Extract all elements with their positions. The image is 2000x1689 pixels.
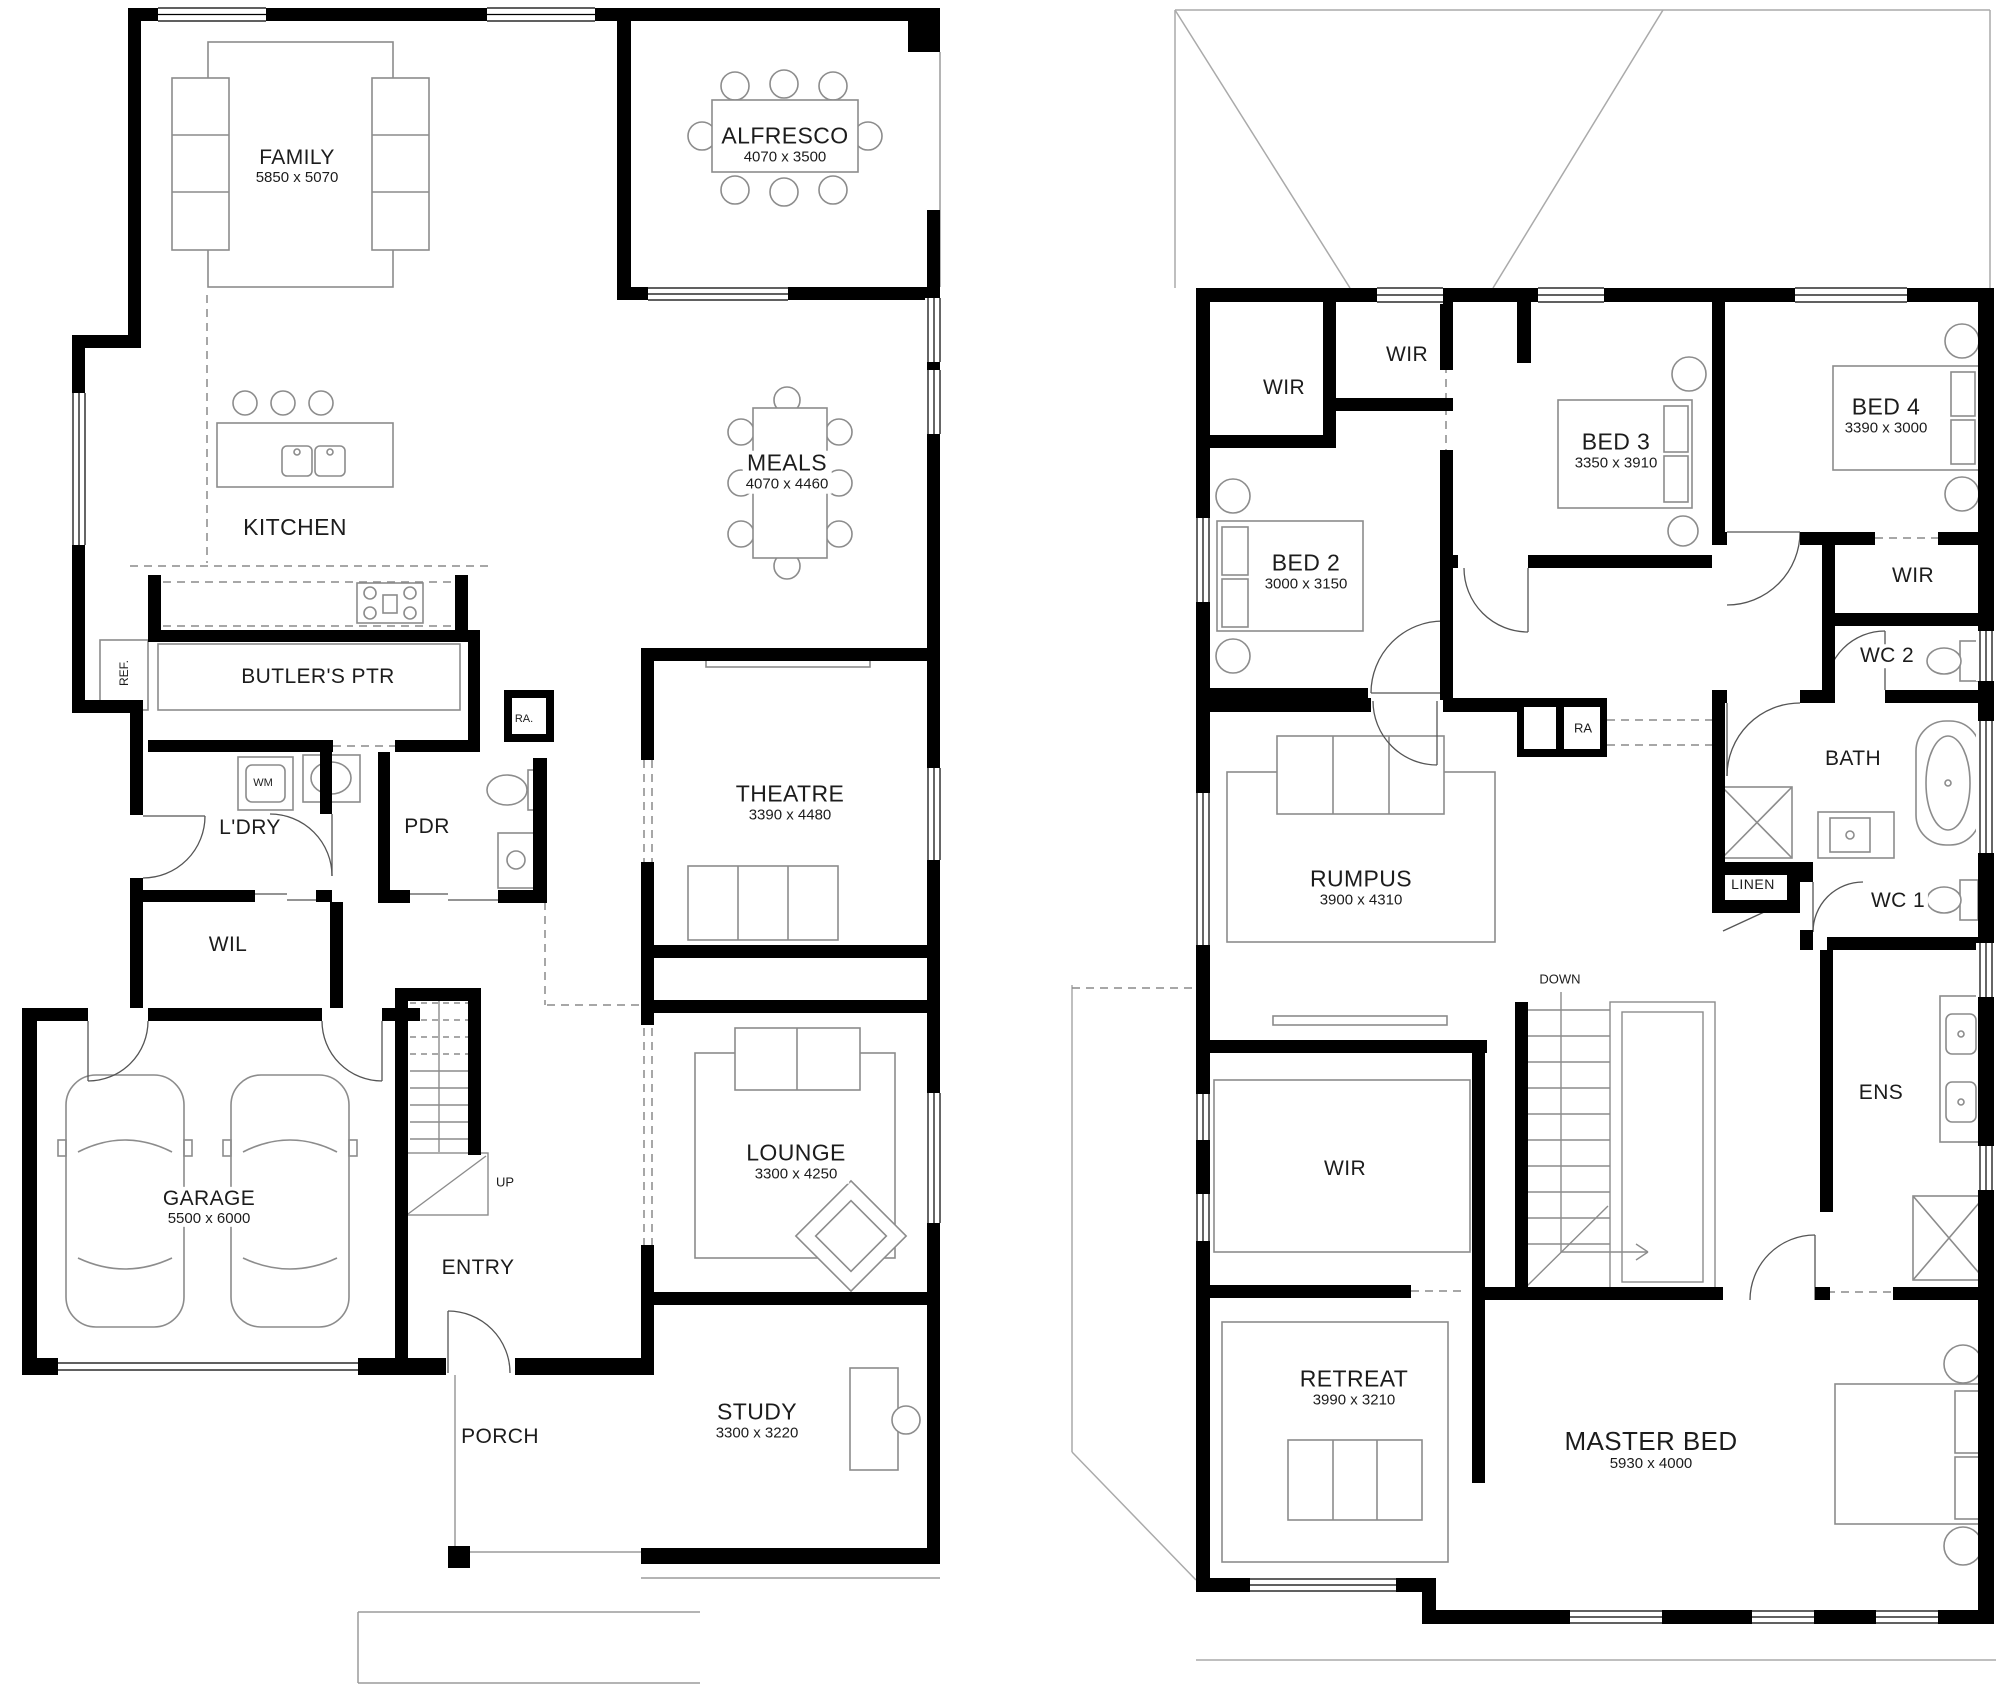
rumpus-door xyxy=(1371,621,1443,693)
rumpus-tv xyxy=(1273,1016,1447,1025)
family-sofa-left xyxy=(172,78,229,250)
bed4-door xyxy=(1727,532,1800,605)
room-label-garage: GARAGE5500 x 6000 xyxy=(160,1187,258,1227)
stairs-down xyxy=(1525,992,1715,1292)
room-label-bath: BATH xyxy=(1822,747,1884,771)
room-label-wir-d: WIR xyxy=(1321,1157,1369,1181)
room-label-entry: ENTRY xyxy=(439,1256,518,1280)
family-sofa-right xyxy=(372,78,429,250)
room-label-ens: ENS xyxy=(1856,1081,1906,1105)
stool xyxy=(271,391,295,415)
return-air-label: RA. xyxy=(513,713,535,725)
return-air-label-first: RA xyxy=(1572,721,1594,736)
wc2-toilet xyxy=(1927,641,1978,681)
bathtub xyxy=(1916,721,1980,845)
room-label-porch: PORCH xyxy=(458,1425,542,1449)
ens-vanity xyxy=(1940,996,1984,1142)
rumpus-sofa xyxy=(1277,736,1444,814)
retreat-furniture xyxy=(1222,1322,1448,1562)
room-label-powder: PDR xyxy=(401,815,453,839)
garage-door-left xyxy=(88,1021,148,1081)
pdr-vanity xyxy=(498,833,535,888)
room-label-study: STUDY3300 x 3220 xyxy=(713,1400,802,1443)
washing-machine-label: WM xyxy=(251,777,275,789)
front-door xyxy=(448,1311,510,1373)
wc1-toilet xyxy=(1927,880,1978,920)
first-floor-plan xyxy=(1072,10,1996,1660)
wc1-door xyxy=(1813,882,1863,932)
room-label-rumpus: RUMPUS3900 x 4310 xyxy=(1307,867,1415,910)
room-label-meals: MEALS4070 x 4460 xyxy=(743,451,832,494)
ens-shower xyxy=(1913,1196,1985,1280)
floor-plan-canvas: FAMILY5850 x 5070 ALFRESCO4070 x 3500 KI… xyxy=(0,0,2000,1689)
cooktop xyxy=(357,583,423,623)
room-label-wc2: WC 2 xyxy=(1857,644,1917,668)
room-label-laundry: L'DRY xyxy=(216,816,284,840)
niche xyxy=(1524,707,1556,749)
stool xyxy=(309,391,333,415)
fridge-label: REF. xyxy=(117,658,131,688)
master-door xyxy=(1750,1235,1815,1300)
bath-door xyxy=(1727,703,1800,776)
theatre-sofa xyxy=(688,866,838,940)
study-desk xyxy=(850,1368,920,1470)
room-label-bed2: BED 23000 x 3150 xyxy=(1262,551,1351,594)
room-label-wir-a: WIR xyxy=(1260,376,1308,400)
room-label-wir-c: WIR xyxy=(1889,564,1937,588)
garage-door-panel xyxy=(58,1360,358,1373)
room-label-family: FAMILY5850 x 5070 xyxy=(253,146,342,186)
bed3-door xyxy=(1464,568,1528,632)
room-label-master-bed: MASTER BED5930 x 4000 xyxy=(1561,1427,1740,1473)
stairs-up-label: UP xyxy=(494,1175,516,1190)
laundry-external-door xyxy=(143,816,205,878)
room-label-linen: LINEN xyxy=(1729,876,1777,892)
kitchen-island xyxy=(217,391,393,487)
room-label-retreat: RETREAT3990 x 3210 xyxy=(1297,1367,1411,1410)
retreat-sofa xyxy=(1288,1440,1422,1520)
room-label-alfresco: ALFRESCO4070 x 3500 xyxy=(718,124,851,167)
garage-door-right xyxy=(322,1021,382,1081)
room-label-bed4: BED 43390 x 3000 xyxy=(1842,395,1931,438)
room-label-kitchen: KITCHEN xyxy=(240,515,350,541)
bath-shower xyxy=(1722,787,1792,858)
room-label-wc1: WC 1 xyxy=(1868,889,1928,913)
room-label-wil: WIL xyxy=(206,933,251,957)
room-label-lounge: LOUNGE3300 x 4250 xyxy=(743,1141,849,1184)
room-label-theatre: THEATRE3390 x 4480 xyxy=(733,782,847,825)
wil-slider xyxy=(255,894,319,900)
bath-vanity xyxy=(1818,812,1894,858)
master-bed xyxy=(1835,1345,1983,1565)
room-label-wir-b: WIR xyxy=(1383,343,1431,367)
pdr-slider xyxy=(398,894,498,900)
room-label-butlers-pantry: BUTLER'S PTR xyxy=(238,665,398,689)
stairs-down-label: DOWN xyxy=(1537,972,1582,987)
rumpus-furniture xyxy=(1227,736,1495,942)
room-label-bed3: BED 33350 x 3910 xyxy=(1572,430,1661,473)
stool xyxy=(233,391,257,415)
